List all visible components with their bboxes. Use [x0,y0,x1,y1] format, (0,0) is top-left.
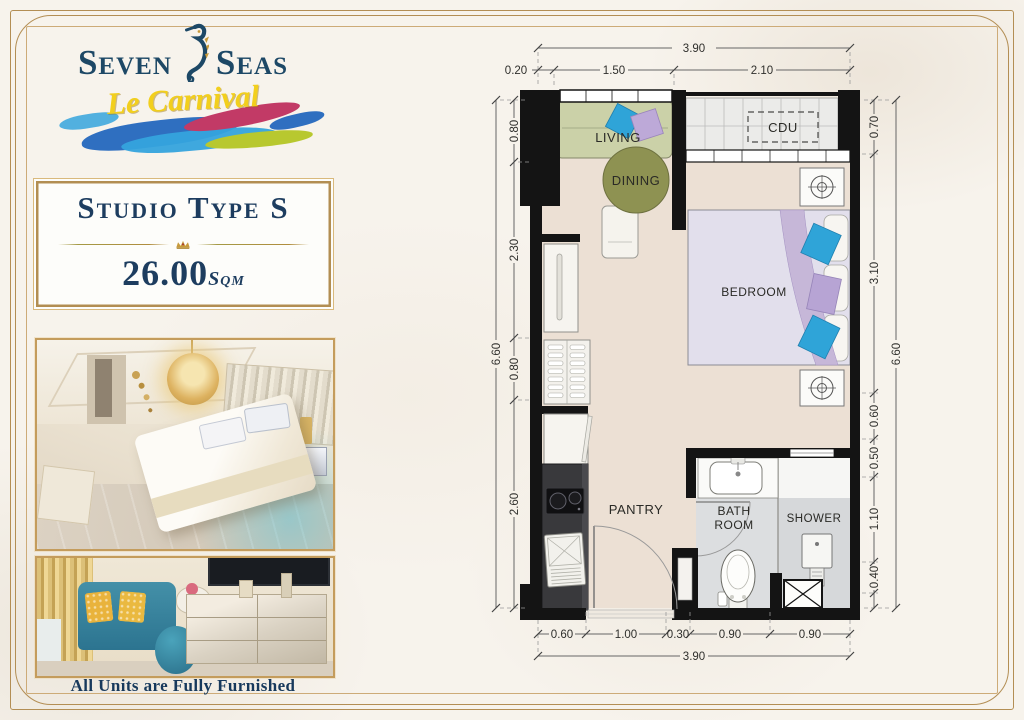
photo-living-tv [208,558,330,586]
crown-ornament-icon [174,239,192,250]
photo-living-pillow-yellow [85,591,114,624]
footer-caption: All Units are Fully Furnished [33,676,333,696]
shower-window [790,449,834,457]
dim-top-overall: 3.90 [683,43,705,55]
room-label-bedroom: BEDROOM [721,285,787,299]
dim-bottom-seg: 0.60 [551,629,573,641]
brand-logo: Seven Seas Le Carnival [33,26,333,168]
sink-icon [544,533,586,588]
floor-plan: CDU LIVING DINING BEDROOM [482,28,922,688]
dim-left-seg: 0.80 [509,358,521,380]
brochure-page: Seven Seas Le Carnival Studio Type S [0,0,1024,720]
dim-right-seg: 0.60 [869,405,881,427]
console-seam [257,595,258,663]
cooktop-icon [546,488,584,514]
room-label-bath-1: BATH [717,504,750,518]
console-seam [187,617,326,618]
chandelier-icon [167,353,219,405]
dim-bottom-seg: 0.30 [667,629,689,641]
console-seam [187,640,326,641]
living-sofa [556,100,672,158]
room-label-living: LIVING [595,130,641,145]
unit-card: Studio Type S 26.00Sqm [33,178,334,310]
wardrobe [544,244,578,332]
ac-unit-icon [800,370,844,406]
bathroom-left-wall [686,448,696,498]
wall-pier-center [672,90,686,230]
dim-top-seg: 1.50 [603,65,625,77]
photo-bedroom-hallway-shadow [95,359,113,418]
dim-top-seg: 2.10 [751,65,773,77]
dim-bottom-overall: 3.90 [683,651,705,663]
wall-right [850,152,860,620]
photo-bedroom [35,338,335,551]
seahorse-icon [179,22,209,82]
dim-right-seg: 3.10 [869,262,881,284]
room-label-shower: SHOWER [787,513,842,525]
shoe-rack [544,340,590,404]
dim-left-seg: 2.60 [509,493,521,515]
brand-name-second: Seas [216,45,288,80]
dim-bottom-seg: 0.90 [719,629,741,641]
wall-column-topright [838,90,860,152]
dim-right-overall: 6.60 [891,343,903,365]
photo-bedroom-vanity [37,465,96,525]
dim-right-seg: 0.70 [869,116,881,138]
photo-living-console [186,594,327,664]
dim-bottom-seg: 0.90 [799,629,821,641]
living-window [560,90,672,102]
room-label-bath-2: ROOM [714,518,753,532]
photo-living-pillow-yellow [118,591,147,623]
dim-right-seg: 0.50 [869,447,881,469]
unit-area-value: 26.00 [122,253,208,293]
wall-column-topleft [520,90,560,206]
room-label-pantry: PANTRY [609,502,664,517]
balcony-window [686,150,850,162]
room-label-cdu: CDU [768,120,798,135]
dim-left-seg: 0.80 [509,120,521,142]
dim-bottom-seg: 1.00 [615,629,637,641]
wall-nib-shower [770,573,782,620]
cdu-balcony: CDU [686,92,838,154]
photo-living-vase [239,580,253,599]
refrigerator [544,414,592,464]
unit-area-unit: Sqm [208,268,245,290]
dim-left-seg: 2.30 [509,239,521,261]
photo-living-room [35,556,335,678]
photo-bedroom-pillow [198,416,247,450]
dim-top-seg: 0.20 [505,65,527,77]
divider-line-right [197,244,309,246]
ac-unit-icon [800,168,844,206]
unit-title: Studio Type S [34,192,333,223]
floor-drain-icon [784,580,822,608]
dim-left-overall: 6.60 [491,343,503,365]
photo-bedroom-pillow [243,403,290,434]
kitchen-counter [542,464,588,610]
vanity-sink-icon [698,457,778,498]
unit-area: 26.00Sqm [34,251,333,296]
divider-line-left [58,244,170,246]
dining-chair [602,206,638,258]
dim-right-seg: 0.40 [869,566,881,588]
photo-living-vase [281,573,292,599]
dim-right-seg: 1.10 [869,508,881,530]
brand-name-first: Seven [78,45,172,80]
room-label-dining: DINING [612,173,661,188]
unit-divider [58,239,309,250]
